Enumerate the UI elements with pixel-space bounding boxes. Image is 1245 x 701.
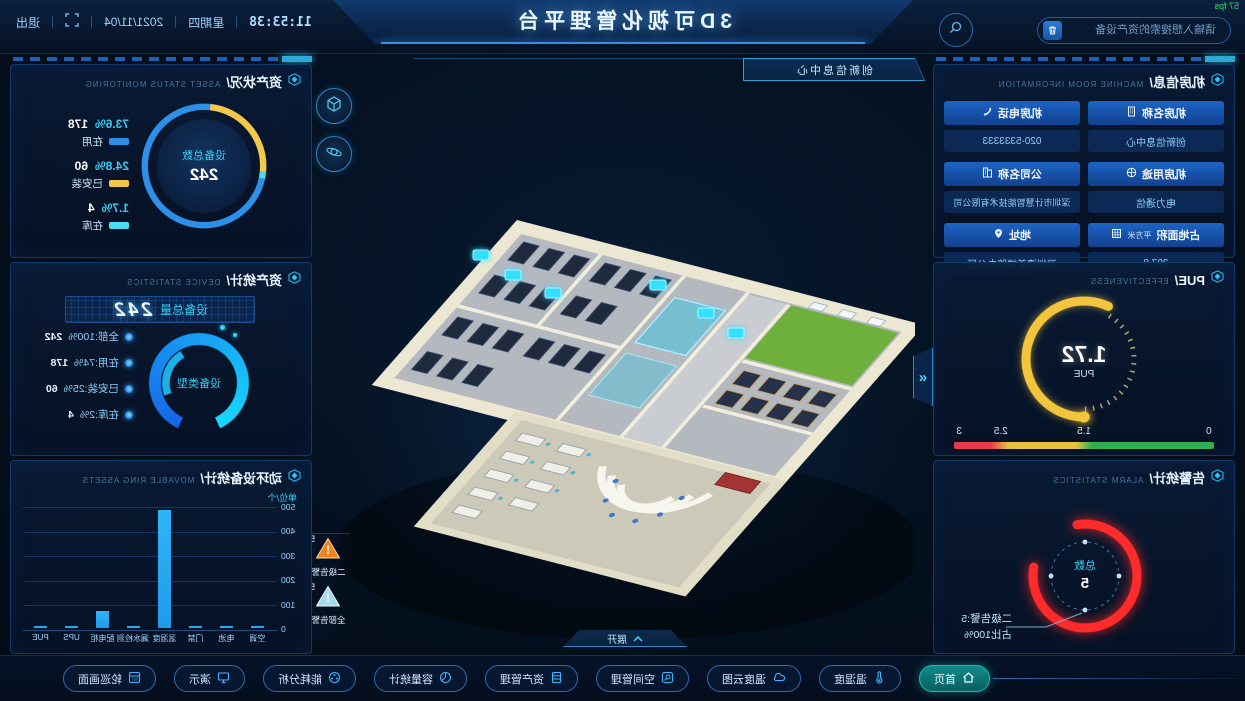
presentation-icon (217, 671, 230, 687)
panel-subtitle: EFFECTIVENESS (1090, 277, 1169, 288)
panel-subtitle: ALARM STATISTICS (1053, 476, 1144, 487)
view-controls (316, 88, 352, 172)
warning-triangle-blue-icon: ! (316, 595, 342, 612)
alarm-badge-all[interactable]: 5 ! 全部告警 (309, 585, 348, 626)
legend-item: 1.7%4 在库 (68, 201, 129, 233)
nav-demo-button[interactable]: 演示 (174, 665, 245, 692)
diamond-icon (288, 271, 301, 289)
nav-home-button[interactable]: 首页 (919, 665, 990, 692)
thermometer-icon (873, 671, 886, 687)
weekday: 星期四 (188, 14, 224, 31)
device-total-lcd: 设备总量 242 (65, 296, 255, 323)
search-field[interactable] (1037, 17, 1231, 44)
diamond-icon (288, 469, 301, 487)
pue-scale-bar (954, 442, 1214, 449)
trash-icon[interactable] (1043, 21, 1062, 40)
cabinet-icon (550, 671, 563, 687)
panel-room-info: 机房信息/ MACHINE ROOM INFORMATION 机房名称 创新信息… (933, 64, 1235, 258)
diamond-icon (1211, 469, 1224, 487)
reel-icon (328, 671, 341, 687)
panel-title: 动环设备统计/ (200, 468, 282, 487)
panel-subtitle: MACHINE ROOM INFORMATION (998, 80, 1144, 91)
asset-status-legend: 73.6%178 在用 24.8%60 已安装 1.7%4 在库 (68, 117, 129, 243)
pue-value: 1.72 (1034, 341, 1134, 368)
search-box-icon (661, 671, 674, 687)
nav-energy-analysis-button[interactable]: 能耗分析 (263, 665, 356, 692)
legend-item: 73.6%178 在用 (68, 117, 129, 149)
scene-tag[interactable]: 创新信息中心 (743, 58, 925, 81)
panel-title: PUE/ (1175, 273, 1205, 288)
panel-title: 资产统计/ (226, 270, 282, 289)
panel-title: 机房信息/ (1149, 72, 1205, 91)
nav-patrol-screen-button[interactable]: 轮巡画面 (63, 665, 156, 692)
alarm-callout: 二级告警:5 占比100% (936, 611, 1012, 643)
room-field-company: 公司名称 深圳市计慧智能技术有限公司 (944, 162, 1080, 213)
pue-unit: PUE (1034, 369, 1134, 380)
diamond-icon (1211, 73, 1224, 91)
pue-scale-ticks: 0 1.5 2.5 3 (954, 426, 1214, 438)
legend-item: 全部:100%242 (45, 329, 133, 344)
date: 2021/11/04 (104, 15, 163, 29)
company-icon (982, 167, 993, 181)
nav-temp-humidity-button[interactable]: 温湿度 (819, 665, 901, 692)
cube-icon (325, 95, 343, 118)
fps-counter: 57 fps (1214, 1, 1239, 11)
svg-text:!: ! (327, 591, 331, 605)
alarm-callout-line (1004, 609, 1084, 639)
panel-ring-assets: 动环设备统计/ MOVABLE RING ASSETS 单位/个 500 400… (10, 460, 312, 654)
area-icon (1112, 228, 1123, 242)
alarm-badge-strip: 5 ! 二级告警 5 ! 全部告警 (306, 533, 350, 639)
fullscreen-icon[interactable] (65, 13, 79, 32)
room-field-name: 机房名称 创新信息中心 (1088, 101, 1224, 152)
diamond-icon (288, 73, 301, 91)
dashboard-root: 3D可视化管理平台 11:53:38 星期四 2021/11/04 (0, 0, 1245, 701)
panel-device-stats: 资产统计/ DEVICE STATISTICS 设备总量 242 设备类型 全部… (10, 262, 312, 456)
bottom-toolbar: 首页 温湿度 温度云图 空间管理 资产管理 容量统计 (0, 655, 1245, 701)
nav-space-mgmt-button[interactable]: 空间管理 (596, 665, 689, 692)
alarm-total: 5 (1035, 575, 1135, 592)
diamond-icon (1211, 270, 1224, 288)
chevron-up-icon (633, 629, 643, 647)
orbit-icon (325, 143, 343, 166)
pie-icon (439, 671, 452, 687)
warning-triangle-orange-icon: ! (316, 547, 342, 564)
wheel-icon (1126, 167, 1137, 181)
monitor-keyboard-icon (128, 671, 141, 687)
orbit-view-button[interactable] (316, 136, 352, 172)
location-pin-icon (993, 228, 1004, 242)
panel-asset-status: 资产状况/ ASSET STATUS MONITORING 设备总数 242 7… (10, 64, 312, 258)
deco-dashes-left (933, 57, 1235, 61)
room-field-usage: 机房用途 电力通信 (1088, 162, 1224, 213)
room-field-phone: 机房电话 020-5333333 (944, 101, 1080, 152)
floorplan-3d-view[interactable] (330, 218, 915, 650)
panel-alarm-stats: 告警统计/ ALARM STATISTICS 总数 5 二级告警:5 占比100… (933, 460, 1235, 654)
collapse-panel-handle[interactable]: « (913, 348, 933, 406)
device-ring-label: 设备类型 (147, 375, 251, 391)
cloud-icon (772, 671, 786, 687)
search-input[interactable] (1062, 23, 1218, 37)
panel-pue: PUE/ EFFECTIVENESS 1.72 PUE 0 1.5 2.5 3 (933, 262, 1235, 456)
alarm-badge-level2[interactable]: 5 ! 二级告警 (309, 537, 348, 578)
exit-button[interactable]: 退出 (16, 14, 40, 31)
panel-subtitle: ASSET STATUS MONITORING (85, 80, 221, 91)
deco-dashes-right (10, 57, 312, 61)
device-stats-legend: 全部:100%242 在用:74%178 已安装:25%60 在库:2%4 (45, 329, 133, 433)
panel-subtitle: DEVICE STATISTICS (126, 278, 220, 289)
legend-item: 在用:74%178 (45, 355, 133, 370)
legend-item: 在库:2%4 (45, 407, 133, 422)
alarm-center-label: 总数 (1035, 557, 1135, 573)
home-icon (962, 671, 975, 687)
asset-status-center: 设备总数 242 (157, 119, 251, 213)
nav-temp-cloudmap-button[interactable]: 温度云图 (707, 665, 801, 692)
panel-subtitle: MOVABLE RING ASSETS (82, 476, 195, 487)
search-button[interactable] (939, 13, 973, 47)
panel-title: 告警统计/ (1149, 468, 1205, 487)
panel-title: 资产状况/ (226, 72, 282, 91)
scene-tag-line (413, 58, 743, 59)
nav-capacity-stats-button[interactable]: 容量统计 (374, 665, 467, 692)
double-chevron-icon: « (919, 369, 927, 386)
legend-item: 24.8%60 已安装 (68, 159, 129, 191)
expand-tab[interactable]: 展开 (563, 630, 687, 647)
phone-icon (982, 106, 993, 120)
toolbar-deco-line (993, 678, 1245, 679)
building-icon (1126, 106, 1137, 120)
top-bar: 3D可视化管理平台 11:53:38 星期四 2021/11/04 (0, 0, 1245, 54)
search-icon (949, 20, 964, 40)
legend-item: 已安装:25%60 (45, 381, 133, 396)
svg-text:!: ! (327, 543, 331, 557)
nav-asset-mgmt-button[interactable]: 资产管理 (485, 665, 578, 692)
clock-time: 11:53:38 (249, 15, 312, 30)
cube-view-button[interactable] (316, 88, 352, 124)
